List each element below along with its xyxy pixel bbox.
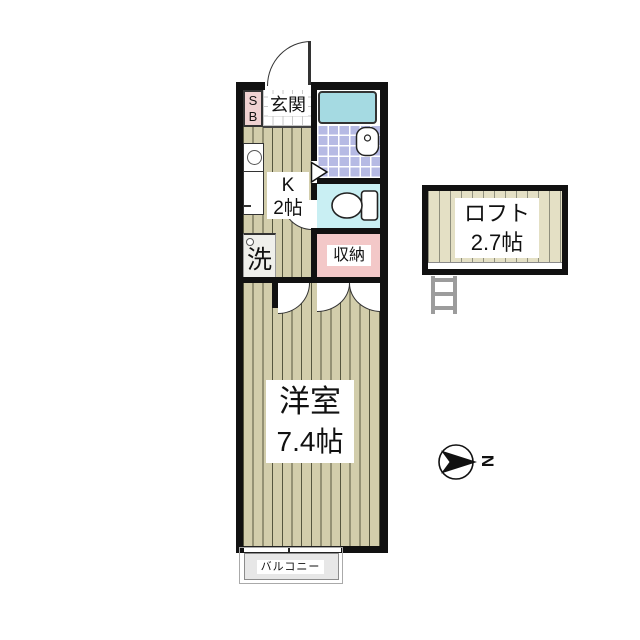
wall-room-stub xyxy=(272,277,278,308)
loft-label: ロフト 2.7帖 xyxy=(455,198,539,258)
room-size: 7.4帖 xyxy=(266,424,354,460)
loft-size: 2.7帖 xyxy=(455,229,539,256)
ladder-rung xyxy=(431,292,457,296)
wall-room-header xyxy=(243,277,380,283)
burner-ring-icon xyxy=(247,150,262,165)
loft-name: ロフト xyxy=(455,198,539,229)
wall-bath-left-upper xyxy=(311,90,317,161)
room-name: 洋室 xyxy=(266,380,354,424)
compass xyxy=(436,442,482,484)
wall-closet-left xyxy=(311,234,317,277)
kitchen-burner xyxy=(243,143,264,172)
shoe-box-label-s: S xyxy=(245,93,261,109)
toilet xyxy=(330,189,380,223)
balcony-label: バルコニー xyxy=(257,560,324,574)
wall-bath-bottom xyxy=(317,178,388,184)
ladder-rung xyxy=(431,306,457,310)
wall-bottom-right xyxy=(341,546,388,553)
loft-edge xyxy=(428,262,562,269)
laundry-label: 洗 xyxy=(247,246,272,274)
closet-label: 収納 xyxy=(327,245,371,266)
bathroom-sink xyxy=(355,126,381,158)
laundry-faucet-icon xyxy=(246,238,254,246)
floor-plan: 玄関 S B 収納 K 2帖 洗 洋室 xyxy=(0,0,640,640)
shoe-box-label-b: B xyxy=(245,109,261,125)
toilet-bowl xyxy=(332,193,362,218)
entrance-step-edge xyxy=(263,126,311,128)
wall-left xyxy=(236,82,243,553)
kitchen-label: K 2帖 xyxy=(267,172,309,219)
kitchen-counter-handle xyxy=(243,205,251,207)
wall-top-right xyxy=(311,82,388,90)
shoe-box: S B xyxy=(243,90,263,127)
entrance-door-arc xyxy=(267,41,311,86)
toilet-tank xyxy=(362,191,378,220)
wall-bath-left-mid xyxy=(311,183,317,200)
wall-toilet-bottom xyxy=(311,228,388,234)
room-label: 洋室 7.4帖 xyxy=(266,380,354,463)
loft-ladder xyxy=(430,276,458,316)
compass-north-label: N xyxy=(478,452,496,470)
entrance-door-leaf xyxy=(308,41,311,85)
kitchen-size: 2帖 xyxy=(267,197,309,220)
entrance-label: 玄関 xyxy=(268,94,308,116)
kitchen-counter xyxy=(243,171,264,215)
bathtub xyxy=(318,91,377,124)
ladder-rung xyxy=(431,278,457,282)
kitchen-name: K xyxy=(267,174,309,197)
wall-right xyxy=(380,82,388,553)
